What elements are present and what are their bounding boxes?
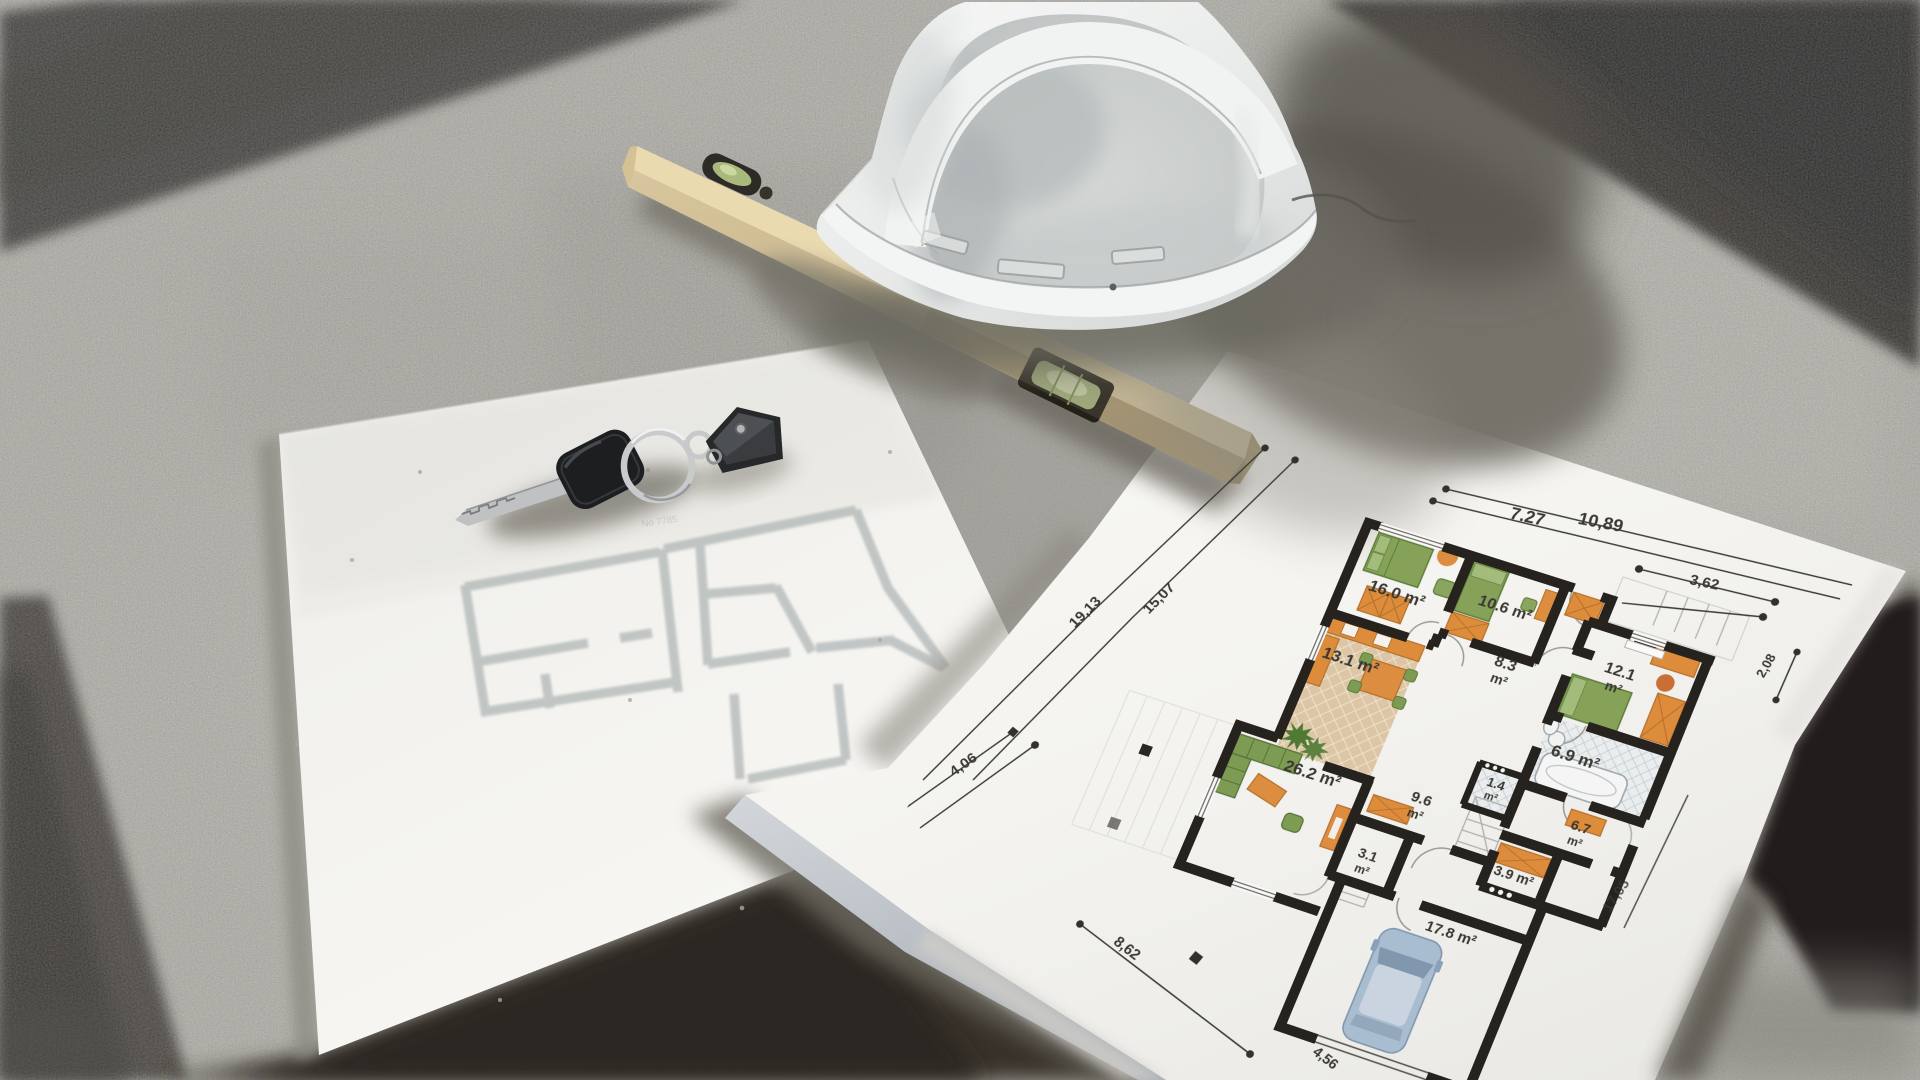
svg-text:19,13: 19,13 bbox=[1066, 594, 1105, 631]
svg-text:4,56: 4,56 bbox=[1310, 1043, 1342, 1072]
svg-text:m²: m² bbox=[1565, 834, 1584, 851]
svg-text:17,05: 17,05 bbox=[1599, 877, 1633, 915]
svg-text:m²: m² bbox=[1352, 862, 1371, 878]
svg-text:7.27: 7.27 bbox=[1508, 504, 1548, 530]
svg-text:3,62: 3,62 bbox=[1688, 572, 1722, 594]
svg-text:8,62: 8,62 bbox=[1110, 933, 1144, 964]
svg-text:4,06: 4,06 bbox=[947, 750, 981, 780]
svg-text:2,08: 2,08 bbox=[1753, 651, 1779, 679]
svg-text:15,07: 15,07 bbox=[1140, 580, 1179, 617]
svg-text:10,89: 10,89 bbox=[1576, 509, 1625, 536]
